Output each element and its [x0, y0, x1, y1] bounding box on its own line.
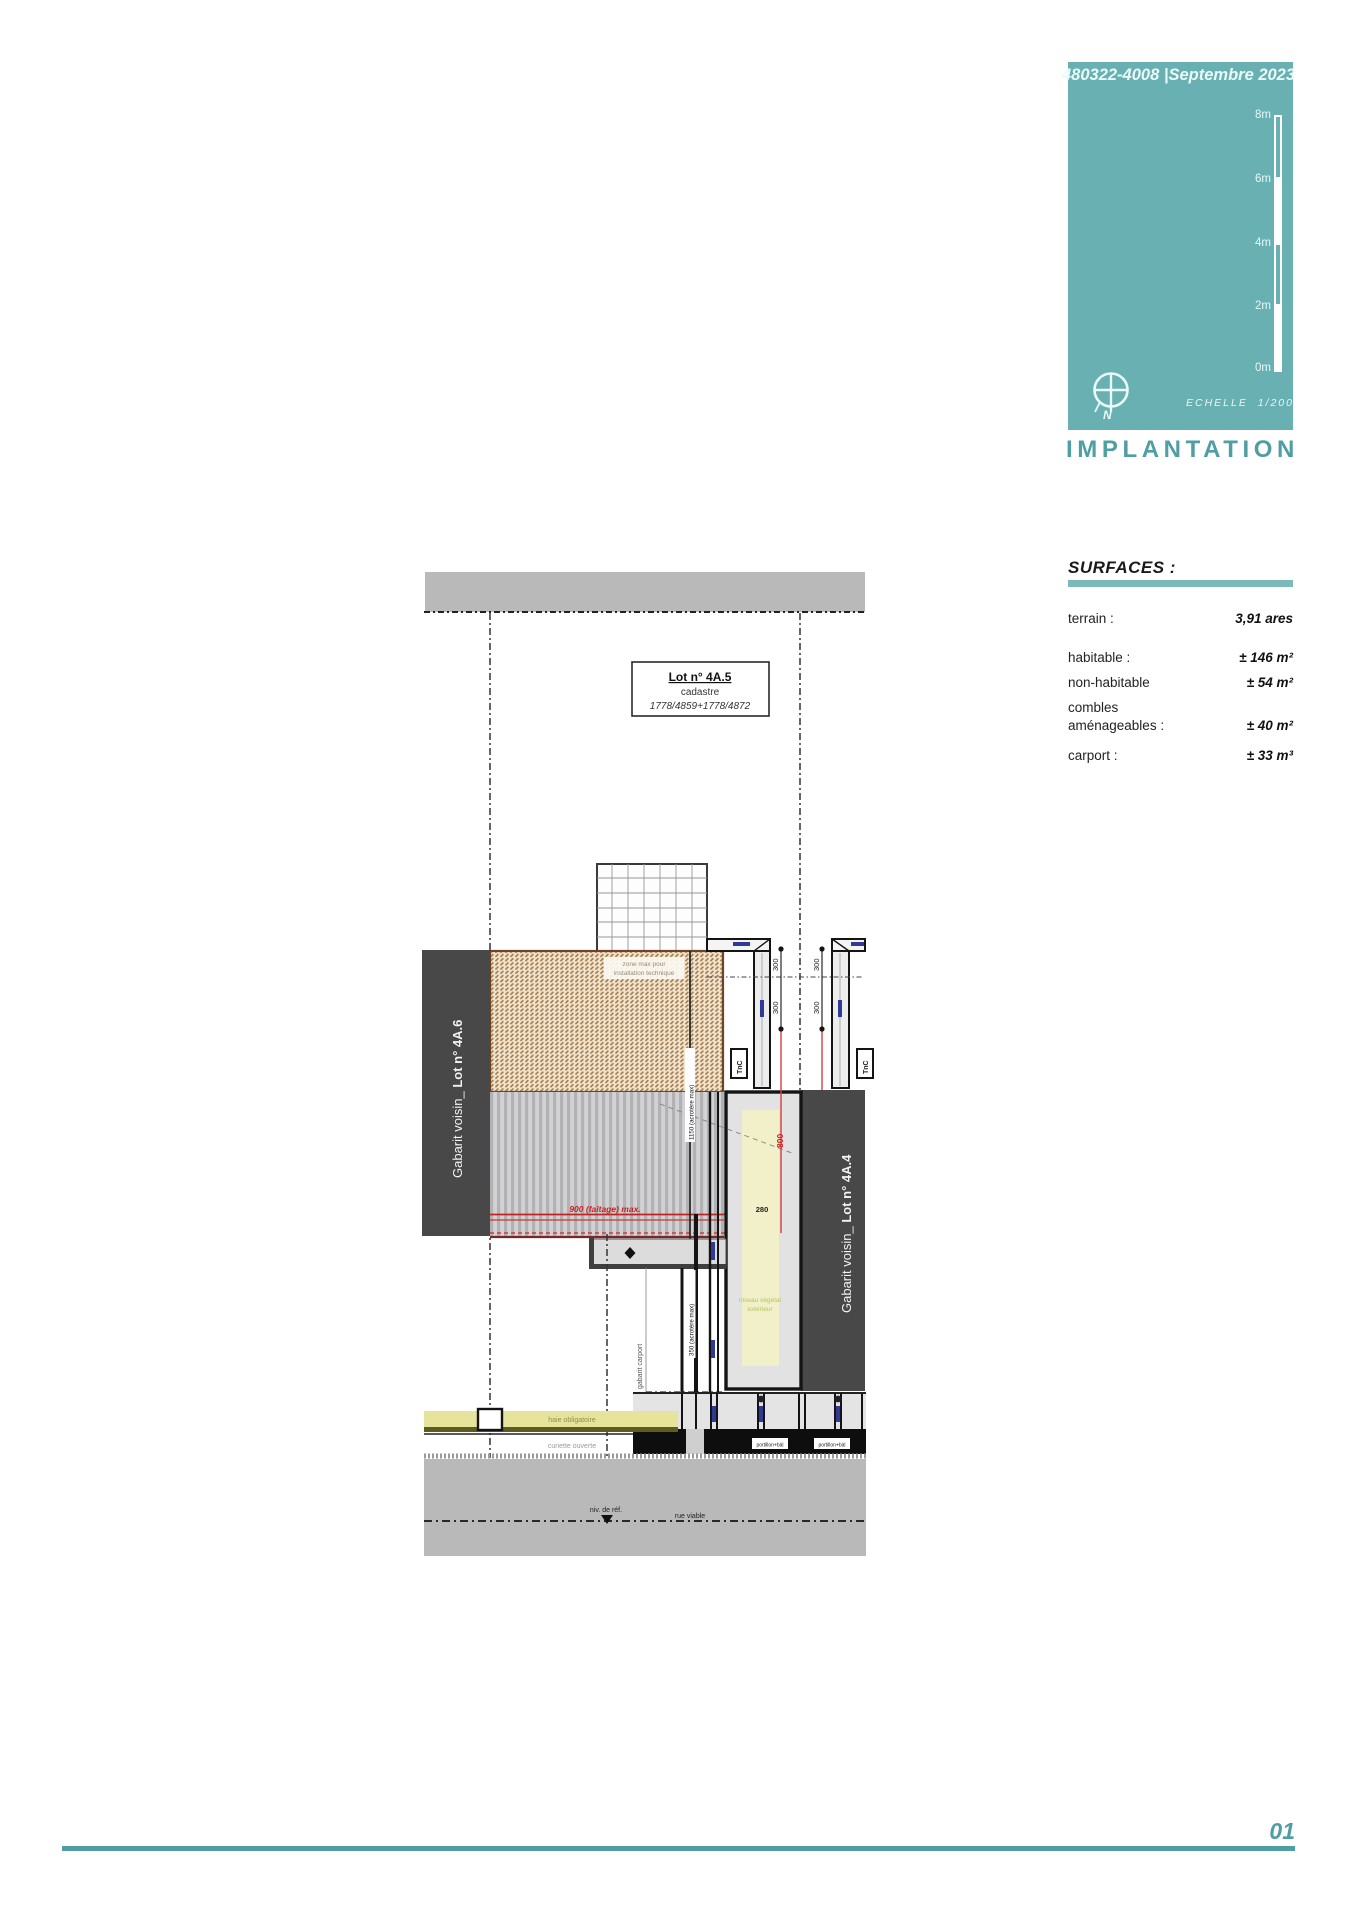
svg-text:TnC: TnC [737, 1060, 744, 1074]
svg-text:portillon+bàl: portillon+bàl [818, 1443, 845, 1449]
svg-text:TnC: TnC [863, 1060, 870, 1074]
svg-text:rue viable: rue viable [675, 1513, 705, 1520]
svg-text:Gabarit voisin_ Lot n° 4A.4: Gabarit voisin_ Lot n° 4A.4 [839, 1154, 854, 1313]
svg-text:cadastre: cadastre [681, 687, 720, 698]
svg-text:gabarit carport: gabarit carport [637, 1344, 644, 1389]
svg-text:Gabarit voisin_ Lot n° 4A.6: Gabarit voisin_ Lot n° 4A.6 [450, 1020, 465, 1178]
svg-text:280: 280 [756, 1205, 769, 1214]
svg-text:portillon+bàl: portillon+bàl [756, 1443, 783, 1449]
svg-text:900 (faîtage) max.: 900 (faîtage) max. [569, 1204, 640, 1214]
svg-text:350 (acrotère max): 350 (acrotère max) [689, 1304, 696, 1356]
svg-text:300: 300 [771, 958, 780, 971]
svg-text:1150 (acrotère max): 1150 (acrotère max) [689, 1085, 696, 1140]
svg-text:cunette ouverte: cunette ouverte [548, 1443, 596, 1450]
svg-text:haie obligatoire: haie obligatoire [548, 1417, 596, 1424]
svg-text:300: 300 [771, 1001, 780, 1014]
svg-text:1778/4859+1778/4872: 1778/4859+1778/4872 [650, 701, 751, 712]
svg-text:niv. de réf.: niv. de réf. [590, 1507, 622, 1514]
svg-text:Lot n° 4A.5: Lot n° 4A.5 [669, 670, 732, 684]
svg-text:zone max pour: zone max pour [623, 961, 667, 968]
svg-text:800: 800 [775, 1134, 785, 1148]
svg-text:extérieur: extérieur [747, 1306, 773, 1313]
svg-text:installation technique: installation technique [614, 970, 675, 977]
svg-text:300: 300 [812, 1001, 821, 1014]
svg-text:niveau végétal: niveau végétal [739, 1297, 781, 1304]
svg-text:300: 300 [812, 958, 821, 971]
